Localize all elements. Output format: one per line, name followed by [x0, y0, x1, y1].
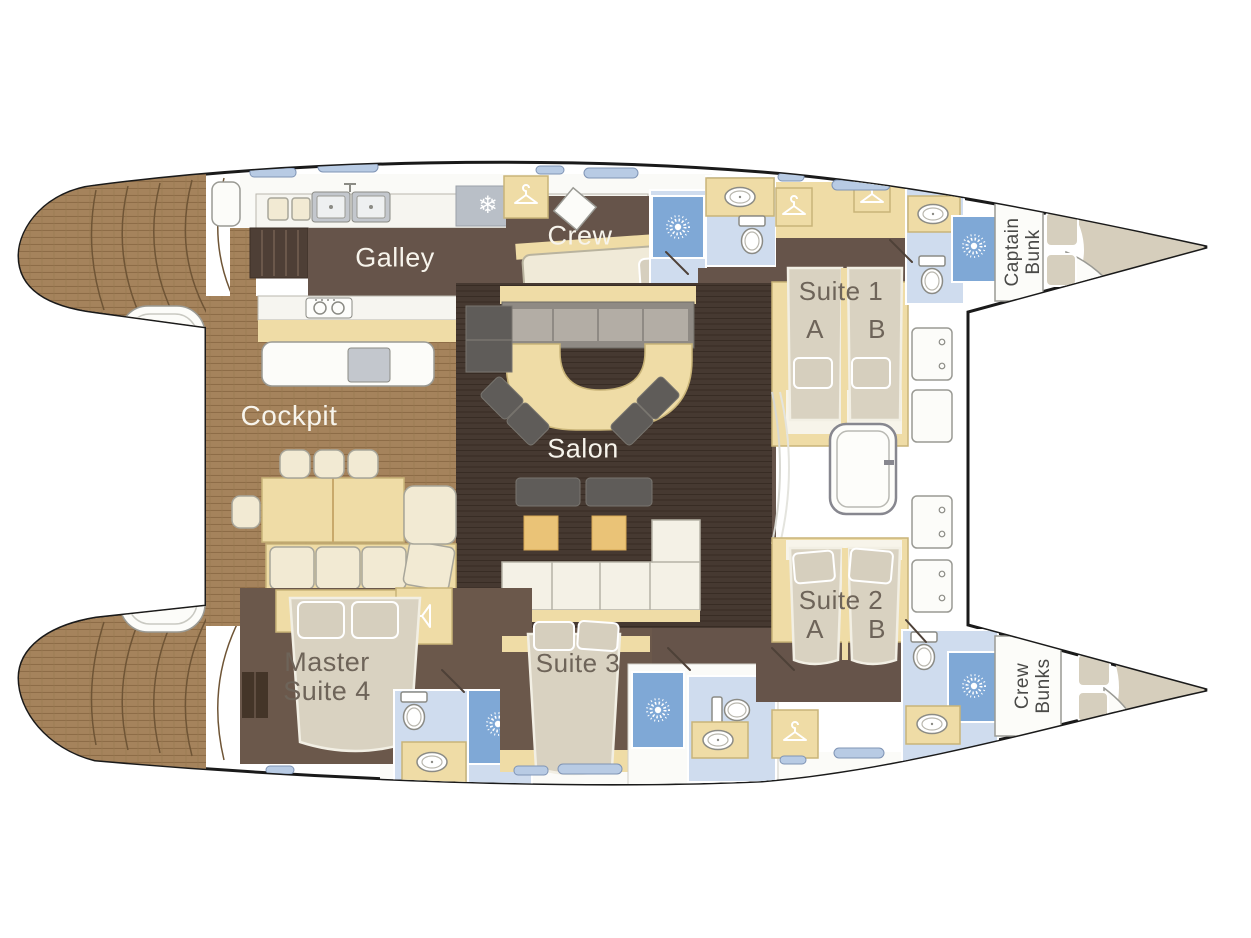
- sink-icon: [725, 188, 755, 207]
- sink-icon: [417, 753, 447, 772]
- captain-bunk-label: Captain Bunk: [1002, 218, 1044, 287]
- galley-cabinet: [250, 228, 308, 278]
- pillow: [352, 602, 398, 638]
- cockpit-chair: [232, 496, 260, 528]
- cockpit-chair: [348, 450, 378, 478]
- suite1-bed-b-label: B: [868, 315, 886, 343]
- pillow: [852, 358, 890, 388]
- pillow: [298, 602, 344, 638]
- master-suite-label-line1: Master: [283, 648, 371, 677]
- deck-hatch-icon: [912, 496, 952, 548]
- salon-label: Salon: [547, 434, 619, 463]
- pillow: [1046, 212, 1078, 246]
- suite1: [772, 180, 908, 446]
- suite1-bed-a-label: A: [806, 315, 824, 343]
- crew-label: Crew: [547, 221, 612, 250]
- salon-console: [466, 306, 512, 372]
- stove: [306, 298, 352, 318]
- cockpit-sofa-corner: [404, 486, 456, 544]
- suite3-closet: [772, 710, 818, 758]
- toilet-icon: [919, 256, 945, 294]
- suite2-bathroom: [902, 630, 998, 766]
- pillow: [849, 548, 894, 584]
- cockpit-label: Cockpit: [241, 401, 338, 431]
- suite2-bed-b-label: B: [868, 615, 886, 643]
- salon-cushion: [586, 478, 652, 506]
- salon-table-block: [592, 516, 626, 550]
- pillow: [793, 550, 835, 583]
- suite1-label: Suite 1: [799, 277, 883, 305]
- foredeck-hatch: [830, 424, 896, 514]
- cockpit-chair: [314, 450, 344, 478]
- captain-bunk-label-line1: Captain: [1002, 218, 1023, 287]
- deck-hatch-icon: [912, 560, 952, 612]
- master-suite-label-line2: Suite 4: [283, 677, 371, 706]
- master-suite-label: Master Suite 4: [283, 648, 371, 706]
- pillow: [534, 622, 574, 650]
- salon-cushion: [516, 478, 580, 506]
- deck-plan: Galley Crew Cockpit Salon Suite 1 A B Su…: [0, 0, 1251, 938]
- toilet-icon: [911, 632, 937, 670]
- deck-plan-drawing: [0, 0, 1251, 938]
- captain-bunk-label-line2: Bunk: [1023, 218, 1044, 287]
- suite2-bed-a-label: A: [806, 615, 824, 643]
- galley-appliance: [268, 198, 288, 220]
- toilet-icon: [739, 216, 765, 254]
- pillow: [1046, 254, 1076, 286]
- crew-closet: [504, 176, 548, 218]
- crew-bunks-label-line1: Crew: [1012, 658, 1033, 713]
- crew-bunks-label-line2: Bunks: [1033, 658, 1054, 713]
- cockpit-chair: [280, 450, 310, 478]
- galley-label: Galley: [355, 243, 435, 272]
- crew-bunks-label: Crew Bunks: [1012, 658, 1054, 713]
- sink-icon: [703, 731, 733, 750]
- deck-hatch-icon: [912, 390, 952, 442]
- suite2-label: Suite 2: [799, 586, 883, 614]
- pillow: [794, 358, 832, 388]
- pillow: [577, 621, 619, 652]
- sink-icon: [918, 205, 948, 224]
- island-appliance: [348, 348, 390, 382]
- snowflake-icon: ❄: [478, 193, 499, 219]
- sink-icon: [917, 715, 947, 734]
- toilet-icon: [712, 697, 750, 723]
- salon-table-block: [524, 516, 558, 550]
- deck-hatch-icon: [912, 328, 952, 380]
- suite3-label: Suite 3: [536, 649, 620, 677]
- toilet-icon: [401, 692, 427, 730]
